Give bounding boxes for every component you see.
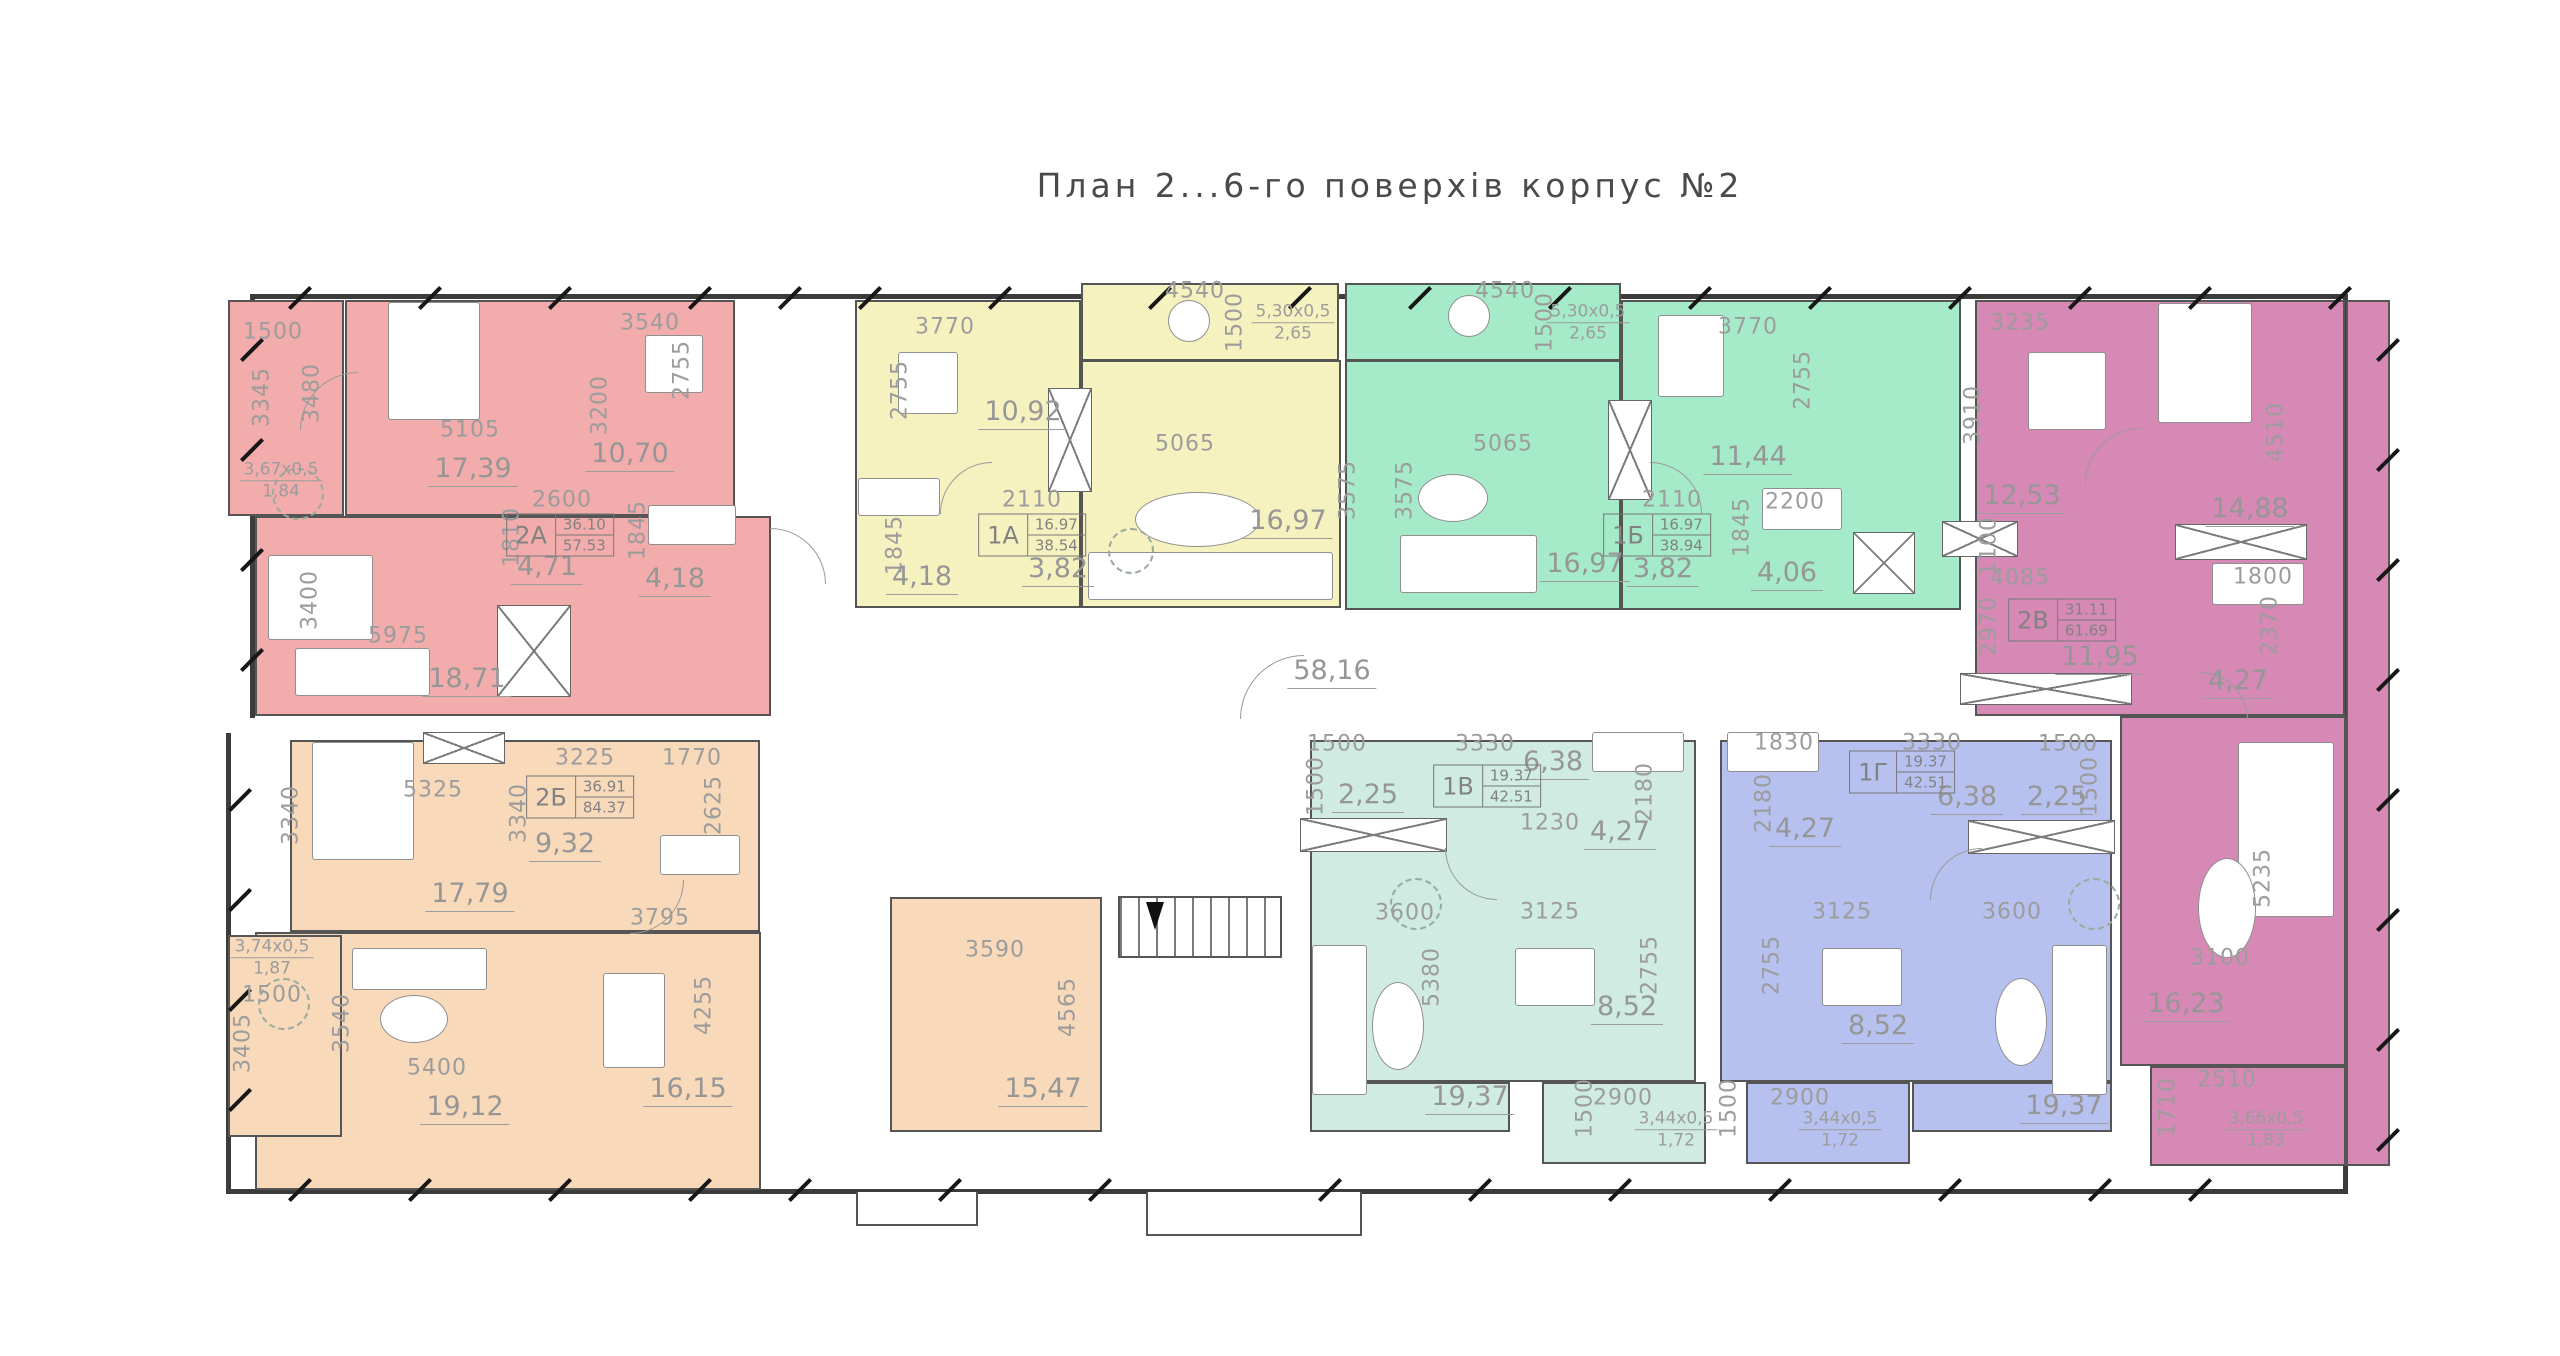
dimension-label: 5325 (403, 778, 463, 803)
room-area-label: 58,16 (1287, 655, 1376, 689)
room-area-label: 18,71 (422, 663, 511, 697)
dimension-label: 1500 (1573, 1078, 1598, 1138)
dimension-tick (228, 888, 252, 912)
sofa-shape (1400, 535, 1537, 593)
dimension-label: 2370 (2258, 595, 2283, 655)
dimension-label: 5065 (1155, 432, 1215, 457)
dimension-label: 3600 (1982, 900, 2042, 925)
total-area-value: 42.51 (1897, 773, 1954, 793)
bed-shape (312, 742, 414, 860)
region-apartment-2v-side-band (2346, 300, 2390, 1166)
dimension-label: 3540 (330, 993, 355, 1053)
living-area-value: 36.91 (576, 777, 633, 798)
dimension-label: 2755 (1638, 935, 1663, 995)
dimension-label: 2900 (1770, 1086, 1830, 1111)
rug-shape (1995, 978, 2047, 1066)
total-area-value: 57.53 (556, 536, 613, 556)
dimension-label: 1500 (1304, 756, 1329, 816)
balcony-size-value: 5,30x0,5 (1252, 301, 1335, 323)
balcony-area-value: 2,65 (1547, 324, 1630, 345)
dimension-label: 1710 (2156, 1077, 2181, 1137)
shaft-box (1968, 820, 2115, 854)
apartment-tag: 1Г19.3742.51 (1849, 751, 1955, 794)
balcony-area-label: 3,44x0,51,72 (1799, 1108, 1882, 1152)
bathtub-shape (648, 505, 736, 545)
stair-direction-arrow (1146, 902, 1164, 930)
apartment-code: 1Г (1849, 751, 1897, 794)
apartment-code: 2А (506, 514, 556, 557)
dimension-label: 5105 (440, 418, 500, 443)
apartment-areas: 31.1161.69 (2058, 599, 2116, 642)
floor-plan: План 2...6-го поверхів корпус №2 1500334… (0, 0, 2560, 1356)
dimension-label: 3910 (1961, 385, 1986, 445)
dimension-label: 2625 (702, 775, 727, 835)
dimension-label: 1500 (242, 983, 302, 1008)
room-area-label: 8,52 (1842, 1010, 1914, 1044)
living-area-value: 36.10 (556, 515, 613, 536)
apartment-areas: 36.9184.37 (576, 776, 634, 819)
entrance-porch (856, 1192, 978, 1226)
room-area-label: 16,23 (2141, 988, 2230, 1022)
balcony-area-value: 1,72 (1635, 1131, 1718, 1152)
balcony-size-value: 5,30x0,5 (1547, 301, 1630, 323)
dimension-label: 1500 (1717, 1078, 1742, 1138)
dimension-label: 1230 (1520, 811, 1580, 836)
rug-shape (2198, 858, 2256, 958)
dimension-label: 2510 (2197, 1068, 2257, 1093)
balcony-area-label: 5,30x0,52,65 (1547, 301, 1630, 345)
shaft-box (1300, 818, 1447, 852)
dimension-label: 2200 (1765, 490, 1825, 515)
balcony-size-value: 3,44x0,5 (1799, 1108, 1882, 1130)
total-area-value: 38.94 (1653, 536, 1710, 556)
dimension-label: 4565 (1056, 977, 1081, 1037)
dimension-label: 1800 (2233, 565, 2293, 590)
dimension-label: 3575 (1336, 460, 1361, 520)
dimension-label: 3400 (298, 570, 323, 630)
dimension-label: 3100 (2190, 946, 2250, 971)
total-area-value: 38.54 (1028, 536, 1085, 556)
apartment-code: 1Б (1603, 514, 1653, 557)
dimension-label: 4510 (2264, 402, 2289, 462)
room-area-label: 17,39 (428, 453, 517, 487)
balcony-area-label: 3,44x0,51,72 (1635, 1108, 1718, 1152)
sofa-shape (295, 648, 430, 696)
apartment-code: 2Б (526, 776, 576, 819)
rug-shape (380, 995, 448, 1043)
room-area-label: 12,53 (1977, 480, 2066, 514)
dimension-label: 3770 (915, 315, 975, 340)
dimension-label: 3125 (1812, 900, 1872, 925)
room-area-label: 4,18 (886, 561, 958, 595)
dimension-label: 3225 (555, 746, 615, 771)
sofa-shape (352, 948, 487, 990)
apartment-tag: 1В19.3742.51 (1433, 765, 1541, 808)
balcony-area-label: 3,67x0,51,84 (240, 459, 323, 503)
dimension-label: 3590 (965, 938, 1025, 963)
dining-table-shape (2028, 352, 2106, 430)
dimension-label: 4540 (1475, 279, 1535, 304)
balcony-area-value: 1,83 (2225, 1131, 2308, 1152)
dimension-label: 5975 (368, 624, 428, 649)
balcony-size-value: 3,66x0,5 (2225, 1108, 2308, 1130)
apartment-tag: 2Б36.9184.37 (526, 776, 634, 819)
room-area-label: 4,06 (1751, 557, 1823, 591)
room-area-label: 17,79 (425, 878, 514, 912)
room-area-label: 9,32 (529, 828, 601, 862)
dimension-label: 1770 (662, 746, 722, 771)
apartment-areas: 16.9738.94 (1653, 514, 1711, 557)
dimension-label: 1500 (2038, 732, 2098, 757)
dimension-label: 1500 (243, 320, 303, 345)
dimension-label: 1500 (1223, 292, 1248, 352)
dimension-label: 3345 (250, 367, 275, 427)
plant-icon (2068, 878, 2120, 930)
room-area-label: 19,37 (2019, 1090, 2108, 1124)
living-area-value: 16.97 (1028, 515, 1085, 536)
dimension-tick (228, 788, 252, 812)
living-area-value: 31.11 (2058, 600, 2115, 621)
dimension-label: 5065 (1473, 432, 1533, 457)
plan-title: План 2...6-го поверхів корпус №2 (1010, 166, 1770, 205)
bed-shape (388, 302, 480, 420)
dimension-label: 3540 (620, 311, 680, 336)
dimension-label: 2755 (1760, 935, 1785, 995)
balcony-area-value: 1,72 (1799, 1131, 1882, 1152)
room-area-label: 3,82 (1022, 553, 1094, 587)
sofa-shape (2052, 945, 2107, 1095)
dimension-label: 2970 (1977, 596, 2002, 656)
room-area-label: 4,27 (1769, 813, 1841, 847)
apartment-tag: 2В31.1161.69 (2008, 599, 2116, 642)
dining-table-shape (603, 973, 665, 1068)
room-area-label: 11,44 (1703, 441, 1792, 475)
bed-shape (2158, 303, 2252, 423)
shaft-box (2175, 524, 2307, 560)
dimension-label: 2600 (532, 488, 592, 513)
dimension-label: 2755 (670, 340, 695, 400)
rug-shape (1372, 982, 1424, 1070)
room-area-label: 19,37 (1425, 1081, 1514, 1115)
door-swing (770, 528, 826, 584)
dimension-label: 4540 (1165, 279, 1225, 304)
dimension-label: 3125 (1520, 900, 1580, 925)
bathtub-shape (660, 835, 740, 875)
entrance-porch (1146, 1192, 1362, 1236)
room-area-label: 10,92 (978, 396, 1067, 430)
dimension-label: 3235 (1990, 311, 2050, 336)
apartment-code: 1В (1433, 765, 1483, 808)
dimension-label: 5235 (2251, 848, 2276, 908)
sofa-shape (1312, 945, 1367, 1095)
apartment-tag: 2А36.1057.53 (506, 514, 614, 557)
shaft-box (1960, 673, 2132, 705)
dimension-label: 3795 (630, 906, 690, 931)
balcony-size-value: 3,44x0,5 (1635, 1108, 1718, 1130)
dimension-label: 2755 (888, 360, 913, 420)
apartment-areas: 19.3742.51 (1483, 765, 1541, 808)
balcony-area-value: 1,84 (240, 482, 323, 503)
room-area-label: 15,47 (998, 1073, 1087, 1107)
dimension-label: 5380 (1420, 947, 1445, 1007)
dimension-label: 5400 (407, 1056, 467, 1081)
dimension-label: 2110 (1642, 488, 1702, 513)
room-area-label: 10,70 (585, 438, 674, 472)
dimension-label: 1845 (1730, 497, 1755, 557)
dining-table-shape (1515, 948, 1595, 1006)
room-area-label: 2,25 (1332, 779, 1404, 813)
dimension-label: 2110 (1002, 488, 1062, 513)
room-area-label: 14,88 (2205, 493, 2294, 527)
rug-shape (1135, 492, 1260, 547)
room-area-label: 4,27 (2202, 665, 2274, 699)
total-area-value: 61.69 (2058, 621, 2115, 641)
apartment-tag: 1Б16.9738.94 (1603, 514, 1711, 557)
dining-table-shape (1822, 948, 1902, 1006)
dimension-label: 3600 (1375, 901, 1435, 926)
shaft-box (1608, 400, 1652, 500)
dimension-label: 3770 (1718, 315, 1778, 340)
room-area-label: 8,52 (1591, 991, 1663, 1025)
apartment-tag: 1А16.9738.54 (978, 514, 1086, 557)
room-area-label: 4,18 (639, 563, 711, 597)
balcony-table-shape (1168, 300, 1210, 342)
apartment-areas: 36.1057.53 (556, 514, 614, 557)
apartment-code: 1А (978, 514, 1028, 557)
dimension-label: 3575 (1393, 460, 1418, 520)
dimension-label: 1830 (1754, 731, 1814, 756)
balcony-area-value: 2,65 (1252, 324, 1335, 345)
dimension-label: 3200 (588, 375, 613, 435)
dimension-label: 1500 (1307, 732, 1367, 757)
dimension-label: 2900 (1593, 1086, 1653, 1111)
shaft-box (1853, 532, 1915, 594)
rug-shape (1418, 474, 1488, 522)
room-area-label: 16,97 (1243, 505, 1332, 539)
room-area-label: 19,12 (420, 1091, 509, 1125)
dimension-label: 3405 (231, 1013, 256, 1073)
apartment-areas: 19.3742.51 (1897, 751, 1955, 794)
dimension-label: 2755 (1791, 350, 1816, 410)
balcony-area-value: 1,87 (231, 959, 314, 980)
balcony-size-value: 3,67x0,5 (240, 459, 323, 481)
dimension-label: 3330 (1455, 732, 1515, 757)
living-area-value: 19.37 (1897, 752, 1954, 773)
apartment-code: 2В (2008, 599, 2058, 642)
balcony-area-label: 3,74x0,51,87 (231, 936, 314, 980)
dining-table-shape (1658, 315, 1724, 397)
room-area-label: 16,15 (643, 1073, 732, 1107)
room-area-label: 2,25 (2021, 781, 2093, 815)
dimension-label: 4255 (692, 975, 717, 1035)
balcony-area-label: 3,66x0,51,83 (2225, 1108, 2308, 1152)
total-area-value: 42.51 (1483, 787, 1540, 807)
dimension-label: 2180 (1633, 762, 1658, 822)
balcony-area-label: 5,30x0,52,65 (1252, 301, 1335, 345)
shaft-box (423, 732, 505, 764)
dimension-label: 3480 (300, 363, 325, 423)
living-area-value: 19.37 (1483, 766, 1540, 787)
dimension-label: 1100 (1977, 516, 2002, 576)
dimension-label: 1845 (626, 500, 651, 560)
room-area-label: 11,95 (2055, 641, 2144, 675)
apartment-areas: 16.9738.54 (1028, 514, 1086, 557)
dimension-label: 3340 (279, 785, 304, 845)
bathtub-shape (858, 478, 940, 516)
room-area-label: 4,27 (1584, 816, 1656, 850)
room-area-label: 3,82 (1627, 553, 1699, 587)
living-area-value: 16.97 (1653, 515, 1710, 536)
staircase (1118, 896, 1282, 958)
balcony-size-value: 3,74x0,5 (231, 936, 314, 958)
total-area-value: 84.37 (576, 798, 633, 818)
plant-icon (1108, 528, 1154, 574)
